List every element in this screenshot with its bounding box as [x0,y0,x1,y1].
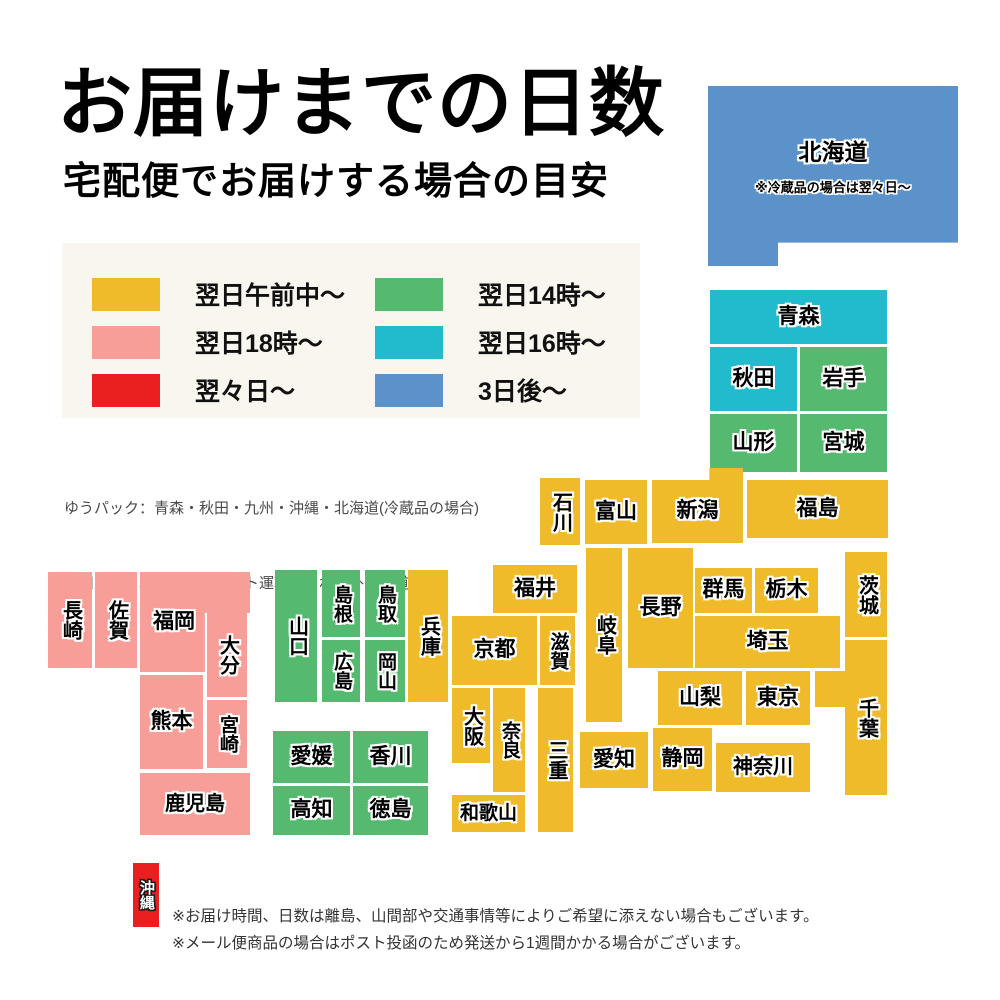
map-tile-fukushima: 福島 [747,480,888,538]
map-tile-osaka: 大阪 [452,688,490,763]
japan-delivery-map: 北海道※冷蔵品の場合は翌々日〜青森秋田岩手山形宮城石川富山新潟福島群馬栃木茨城埼… [0,0,1000,1000]
map-tile-label-ehime: 愛媛 [291,746,333,768]
map-tile-tottori: 鳥取 [365,570,405,637]
map-tile-label-nagasaki: 長崎 [60,600,81,640]
map-tile-akita: 秋田 [710,347,797,411]
map-tile-shizuoka: 静岡 [653,728,712,791]
map-tile-kagoshima: 鹿児島 [140,773,250,835]
map-tile-label-yamagata: 山形 [733,432,775,454]
map-tile-hiroshima: 広島 [322,640,360,702]
map-tile-label-aichi: 愛知 [593,749,635,771]
map-tile-kyoto: 京都 [452,616,537,685]
map-tile-label-tochigi: 栃木 [766,579,808,601]
map-tile-mie: 三重 [538,688,573,832]
map-tile-okayama: 岡山 [365,640,405,702]
map-tile-label-osaka: 大阪 [461,706,482,746]
map-tile-iwate: 岩手 [800,347,887,411]
map-tile-kagawa: 香川 [353,731,428,783]
footer-notes: ※お届け時間、日数は離島、山間部や交通事情等によりご希望に添えない場合もございま… [172,903,819,957]
map-tile-hokkaido: 北海道※冷蔵品の場合は翌々日〜 [708,86,958,266]
map-tile-label-miyazaki: 宮崎 [217,715,237,753]
map-tile-label-ibaraki: 茨城 [856,575,877,615]
map-tile-label-kyoto: 京都 [474,639,516,661]
map-tile-tokyo: 東京 [746,671,810,725]
map-tile-label-hyogo: 兵庫 [418,616,439,656]
map-tile-miyagi: 宮城 [800,414,887,472]
map-tile-label-gifu: 岐阜 [594,615,615,655]
map-tile-saitama: 埼玉 [695,616,840,668]
map-tile-label-iwate: 岩手 [823,368,865,390]
map-tile-yamagata: 山形 [710,414,797,472]
map-tile-kumamoto: 熊本 [140,675,203,769]
map-tile-saga: 佐賀 [95,572,137,668]
map-tile-oita: 大分 [207,613,247,697]
map-tile-hyogo: 兵庫 [408,570,448,702]
map-tile-label-yamanashi: 山梨 [679,687,721,709]
map-tile-ehime: 愛媛 [273,731,350,783]
map-tile-label-kanagawa: 神奈川 [733,757,793,778]
map-tile-aichi: 愛知 [580,732,648,788]
map-tile-chiba: 千葉 [845,640,887,795]
map-tile-label-mie: 三重 [545,740,566,780]
map-tile-label-ishikawa: 石川 [550,492,571,532]
map-tile-yamaguchi: 山口 [275,570,317,702]
map-tile-nagano: 長野 [628,548,693,668]
map-tile-label-kochi: 高知 [291,799,333,821]
map-tile-label-nagano: 長野 [640,597,682,619]
map-tile-label-fukushima: 福島 [797,498,839,520]
map-tile-okinawa: 沖縄 [133,863,159,927]
map-tile-label-aomori: 青森 [778,306,820,328]
map-tile-toyama: 富山 [585,480,647,544]
map-tile-shimane: 島根 [322,570,360,637]
map-tile-label-okinawa: 沖縄 [138,880,154,910]
map-tile-label-tokushima: 徳島 [370,799,412,821]
map-tile-label-okayama: 岡山 [375,652,395,690]
map-tile-label-fukui: 福井 [514,578,556,600]
map-tile-label-gunma: 群馬 [703,579,745,601]
map-tile-label-niigata: 新潟 [677,500,719,522]
map-tile-ibaraki: 茨城 [845,552,887,637]
map-tile-label-hokkaido: 北海道 [799,140,868,164]
map-tile-label-shimane: 島根 [331,585,351,623]
map-tile-label-shizuoka: 静岡 [662,748,704,770]
map-tile-ishikawa: 石川 [540,478,580,545]
map-tile-fukui: 福井 [493,565,577,613]
map-tile-label-kumamoto: 熊本 [151,711,193,733]
map-tile-kanagawa: 神奈川 [716,743,810,792]
map-tile-label-wakayama: 和歌山 [460,804,517,824]
map-tile-label-saitama: 埼玉 [747,631,789,653]
footer-note-line-1: ※お届け時間、日数は離島、山間部や交通事情等によりご希望に添えない場合もございま… [172,903,819,930]
map-tile-label-kagawa: 香川 [370,746,412,768]
map-tile-label-tottori: 鳥取 [375,585,395,623]
map-tile-label-fukuoka: 福岡 [153,611,195,633]
map-tile-gunma: 群馬 [695,568,752,613]
map-tile-niigata: 新潟 [652,468,743,543]
map-tile-label-hiroshima: 広島 [331,652,351,690]
map-tile-label-toyama: 富山 [595,501,637,523]
map-tile-label-akita: 秋田 [733,368,775,390]
map-tile-kochi: 高知 [273,786,350,835]
map-tile-tokyo-bay-block [815,671,845,707]
map-tile-label-yamaguchi: 山口 [286,616,307,656]
map-tile-nara: 奈良 [493,688,525,792]
map-tile-miyazaki: 宮崎 [207,700,247,768]
map-tile-tochigi: 栃木 [755,568,818,613]
map-tile-gifu: 岐阜 [586,548,622,722]
map-tile-shiga: 滋賀 [540,616,575,685]
map-tile-label-tokyo: 東京 [757,687,799,709]
map-tile-label-saga: 佐賀 [106,600,127,640]
map-tile-label-oita: 大分 [217,635,238,675]
map-tile-wakayama: 和歌山 [452,795,525,832]
map-tile-label-chiba: 千葉 [856,698,877,738]
map-tile-note-hokkaido: ※冷蔵品の場合は翌々日〜 [755,177,911,196]
map-tile-label-miyagi: 宮城 [823,432,865,454]
map-tile-label-kagoshima: 鹿児島 [165,794,225,815]
map-tile-label-shiga: 滋賀 [548,632,568,670]
delivery-days-infographic: お届けまでの日数 宅配便でお届けする場合の目安 翌日午前中〜翌日18時〜翌々日〜… [0,0,1000,1000]
map-tile-aomori: 青森 [710,290,887,344]
footer-note-line-2: ※メール便商品の場合はポスト投函のため発送から1週間かかる場合がございます。 [172,930,819,957]
map-tile-label-nara: 奈良 [499,721,519,759]
map-tile-nagasaki: 長崎 [48,572,92,668]
map-tile-yamanashi: 山梨 [658,671,742,725]
map-tile-tokushima: 徳島 [353,786,428,835]
